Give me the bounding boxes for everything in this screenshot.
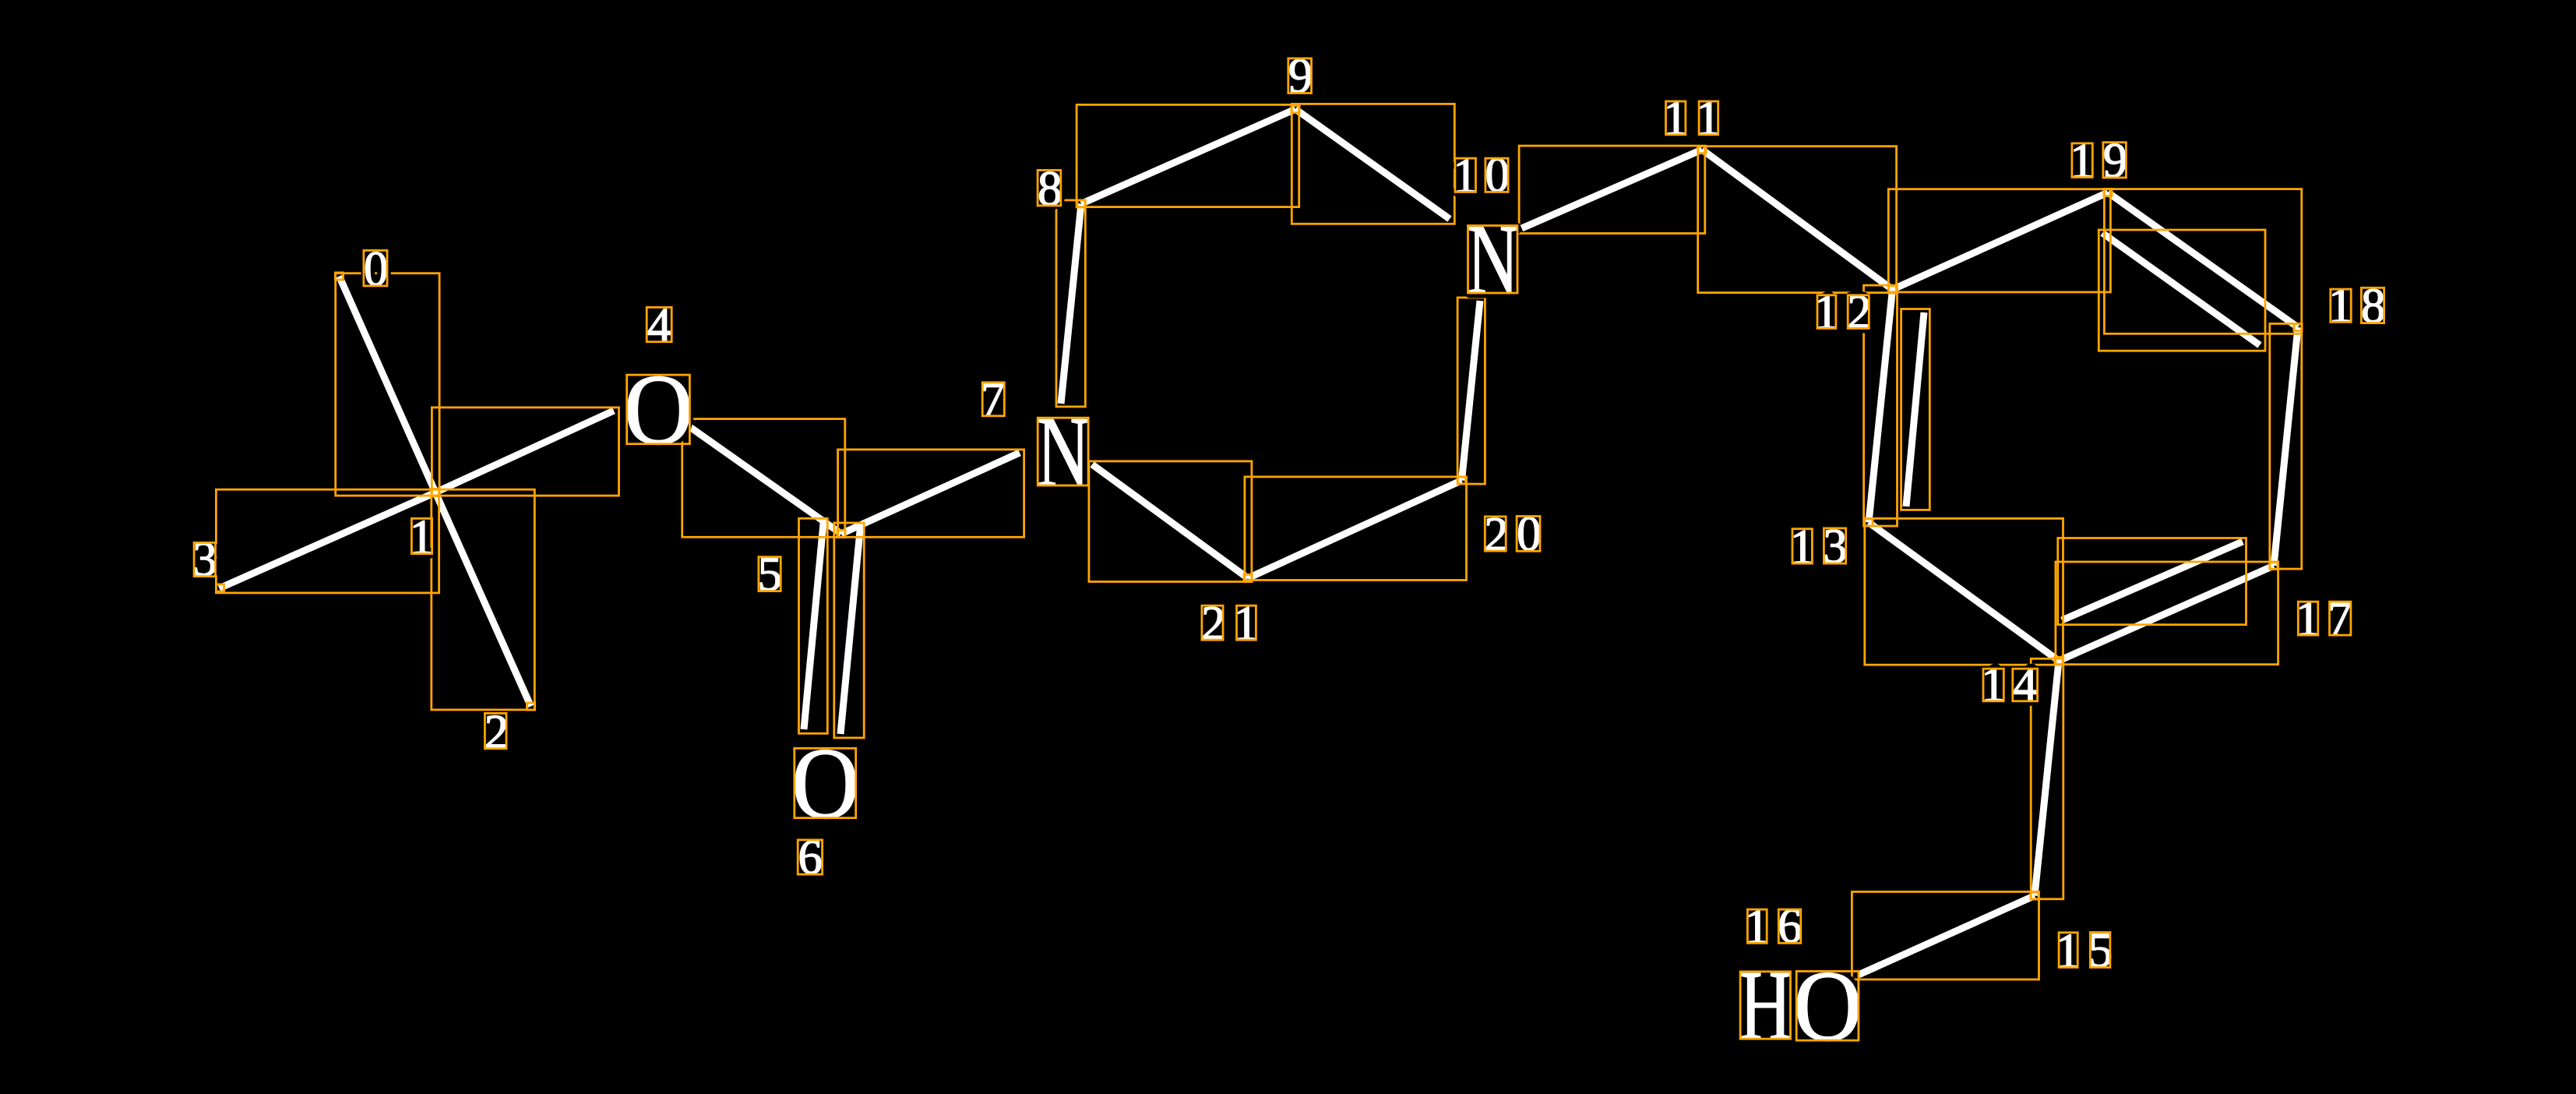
svg-text:1: 1 [1663,91,1688,146]
svg-text:1: 1 [2328,278,2353,333]
svg-text:1: 1 [2070,133,2095,188]
svg-text:1: 1 [1981,658,2006,712]
svg-text:3: 3 [192,532,217,587]
svg-text:H: H [1739,950,1792,1061]
svg-text:4: 4 [2013,658,2038,712]
svg-text:7: 7 [2328,591,2352,646]
svg-text:7: 7 [981,372,1006,427]
svg-text:5: 5 [758,547,783,602]
svg-text:N: N [1467,204,1519,316]
svg-text:0: 0 [1517,506,1542,561]
svg-text:9: 9 [1288,48,1313,103]
svg-text:O: O [624,355,693,466]
svg-text:6: 6 [798,830,823,884]
svg-text:O: O [1793,951,1862,1062]
svg-text:5: 5 [2088,923,2113,977]
svg-text:0: 0 [1485,147,1510,202]
svg-text:1: 1 [1453,148,1478,203]
svg-text:N: N [1037,396,1090,508]
svg-text:1: 1 [2296,591,2321,646]
svg-text:6: 6 [1778,898,1802,953]
svg-text:O: O [791,728,859,840]
